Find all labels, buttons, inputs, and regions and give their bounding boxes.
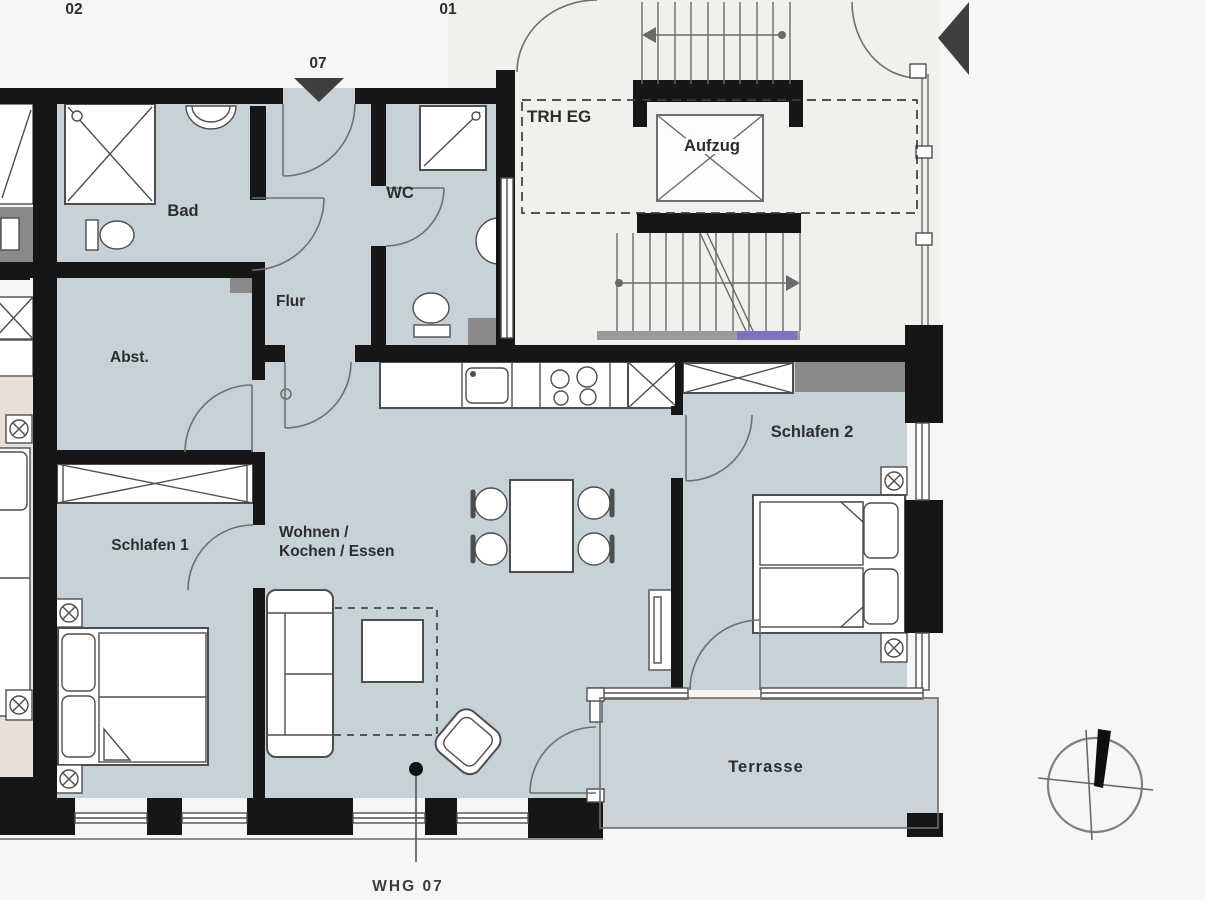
elevator-label: Aufzug [684,137,740,155]
entrance-unit-label: 07 [309,55,326,72]
flur-living-opening-floor [285,345,355,362]
toilet-icon [413,293,449,323]
faucet-icon [470,371,476,377]
schlafen2-sideboard [795,362,905,392]
radiator-icon [649,590,672,670]
toilet-cistern-icon [414,325,450,337]
window [353,813,425,823]
room-label-wohnen-line2: Kochen / Essen [279,543,394,560]
pillow-icon [62,634,95,691]
room-label-schlafen2: Schlafen 2 [771,423,854,441]
apartment-tag: WHG 07 [372,878,443,895]
window [75,813,147,823]
room-label-wc: WC [386,184,414,202]
window [916,633,929,690]
room-label-schlafen1: Schlafen 1 [111,537,189,554]
stair-tread-accent [737,331,797,340]
kitchen-counter [380,362,678,408]
schlafen2-furniture [753,467,907,662]
window [182,813,247,823]
neighbor-shelf [0,340,33,376]
unit-label-02: 02 [65,1,82,18]
pillow-icon [62,696,95,757]
building-entry-marker-icon [938,2,969,75]
room-label-bad: Bad [167,202,198,220]
toilet-cistern-icon [86,220,98,250]
mattress [760,502,863,565]
room-label-wohnen-line1: Wohnen / [279,524,349,541]
toilet-icon [100,221,134,249]
unit-label-01: 01 [439,1,457,18]
pillow-icon [864,569,898,624]
elevator-icon [657,115,763,201]
floor-plan-canvas: 02 01 07 TRH EG Aufzug Bad WC Flur Abst.… [0,0,1205,900]
leader-dot [409,762,423,776]
floor-plan-page: 02 01 07 TRH EG Aufzug Bad WC Flur Abst.… [0,0,1205,900]
room-label-abstellraum: Abst. [110,349,149,366]
dining-table-icon [510,480,573,572]
schlafen2-wardrobe [683,362,905,393]
north-compass-icon [1038,729,1153,840]
pillow-icon [864,503,898,558]
coffee-table-icon [362,620,423,682]
room-label-terrasse: Terrasse [728,758,804,776]
window [916,423,929,500]
room-label-flur: Flur [276,293,305,310]
stairwell-label: TRH EG [527,107,591,126]
mattress [760,568,863,627]
sofa-icon [267,590,333,757]
window [501,178,513,338]
abstellraum-duct [230,278,252,293]
window [457,813,528,823]
